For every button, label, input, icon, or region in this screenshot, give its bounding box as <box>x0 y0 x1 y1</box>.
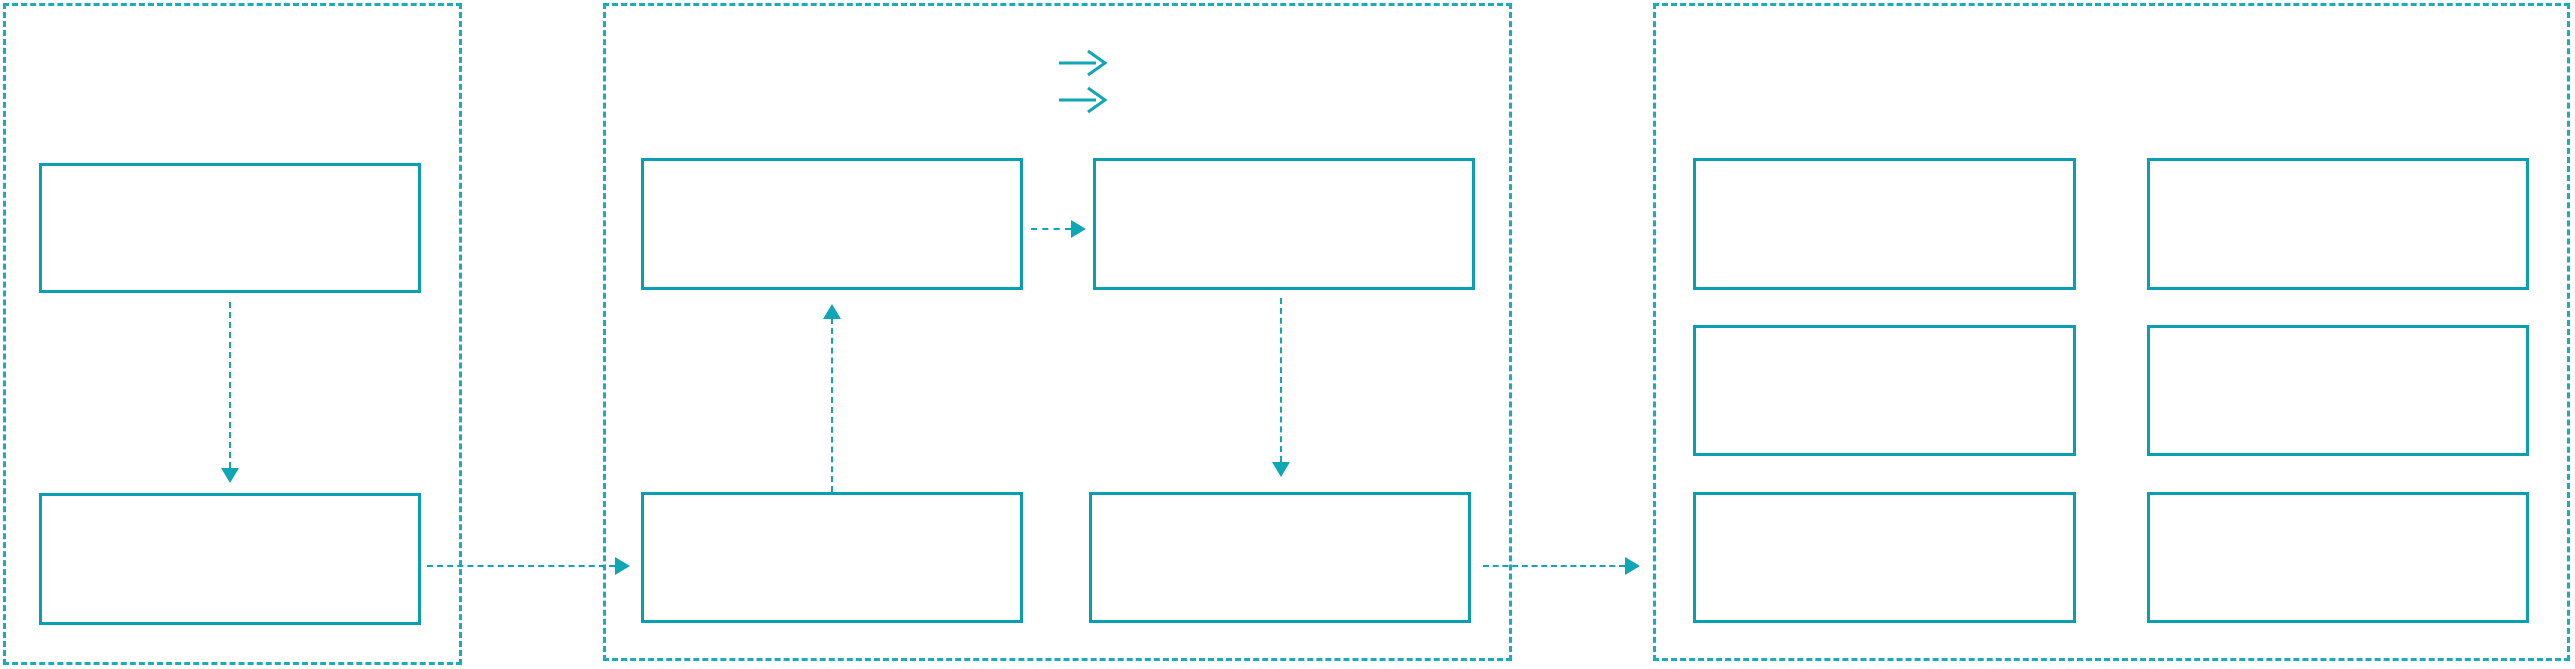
arrow-shaft <box>831 318 833 492</box>
right-box-row2-col2 <box>2147 325 2529 456</box>
double-right-arrow-icon <box>1058 48 1114 114</box>
right-box-row2-col1 <box>1693 325 2076 456</box>
arrow-shaft <box>229 302 231 468</box>
arrow-shaft <box>1280 298 1282 462</box>
arrow-shaft <box>427 565 615 567</box>
arrowhead-down-icon <box>221 468 239 483</box>
right-box-row3-col1 <box>1693 492 2076 623</box>
arrow-shaft <box>1031 228 1071 230</box>
middle-box-top-left <box>641 158 1023 290</box>
left-box-1 <box>39 163 421 293</box>
arrowhead-right-icon <box>1625 557 1640 575</box>
left-box-2 <box>39 493 421 625</box>
flow-diagram <box>0 0 2575 669</box>
arrowhead-right-icon <box>615 557 630 575</box>
arrow-shaft <box>1483 565 1625 567</box>
middle-box-bottom-left <box>641 492 1023 623</box>
middle-box-bottom-right <box>1089 492 1471 623</box>
arrowhead-right-icon <box>1071 220 1086 238</box>
right-box-row1-col2 <box>2147 158 2529 290</box>
right-box-row1-col1 <box>1693 158 2076 290</box>
right-box-row3-col2 <box>2147 492 2529 623</box>
arrowhead-down-icon <box>1272 462 1290 477</box>
arrowhead-up-icon <box>823 304 841 319</box>
middle-box-top-right <box>1093 158 1475 290</box>
